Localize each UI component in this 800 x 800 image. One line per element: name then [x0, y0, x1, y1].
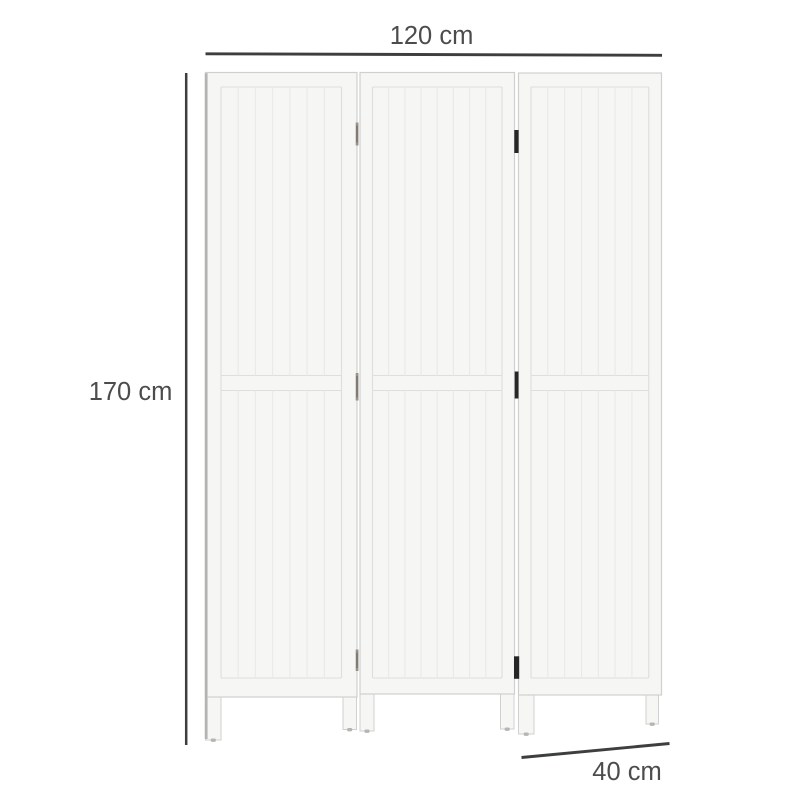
svg-text:170 cm: 170 cm: [89, 378, 173, 406]
svg-text:120 cm: 120 cm: [390, 22, 474, 50]
svg-text:40 cm: 40 cm: [592, 758, 661, 786]
